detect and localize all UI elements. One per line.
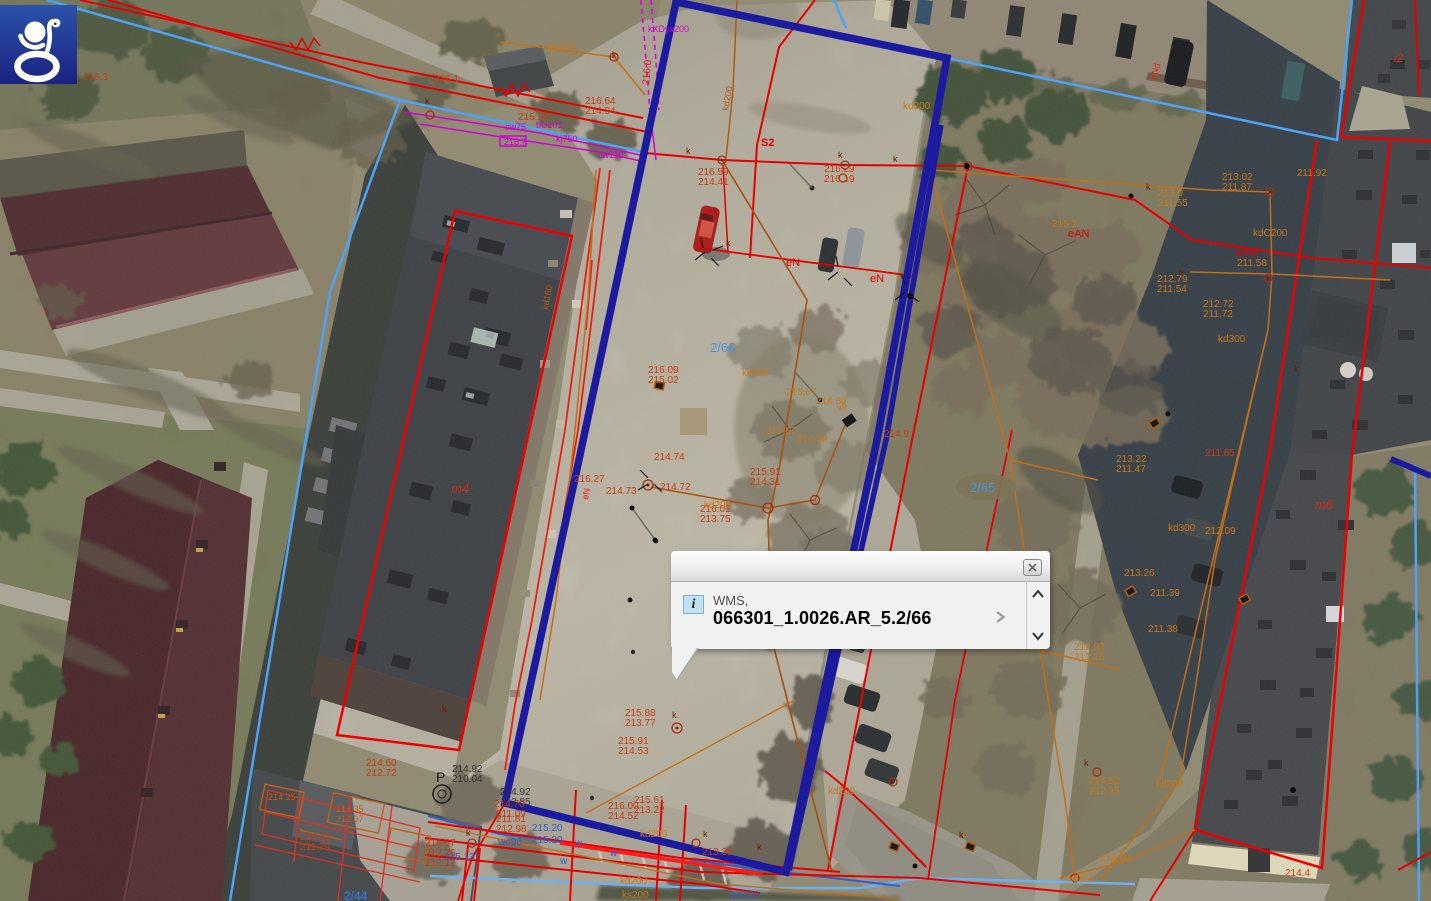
svg-text:211.87: 211.87	[1222, 182, 1252, 193]
svg-text:P: P	[436, 769, 445, 785]
svg-text:m6: m6	[1315, 497, 1334, 512]
svg-text:210.04: 210.04	[452, 774, 483, 785]
svg-text:216.1: 216.1	[434, 74, 459, 85]
svg-text:214.53: 214.53	[618, 746, 649, 757]
svg-text:eAN: eAN	[1236, 247, 1257, 259]
svg-text:213.75: 213.75	[700, 514, 731, 525]
svg-text:k: k	[703, 829, 708, 839]
svg-text:216.3: 216.3	[83, 72, 108, 83]
svg-text:212.15: 212.15	[1074, 652, 1105, 663]
svg-text:214.94: 214.94	[585, 106, 616, 117]
svg-text:kj750: kj750	[556, 134, 578, 144]
svg-text:211.79: 211.79	[300, 842, 330, 853]
svg-text:216.0: 216.0	[641, 59, 654, 85]
svg-text:216.27: 216.27	[574, 474, 605, 485]
svg-text:k: k	[612, 50, 617, 60]
svg-text:bU101: bU101	[536, 120, 563, 130]
svg-text:k: k	[686, 146, 691, 156]
svg-text:211.38: 211.38	[1148, 624, 1178, 635]
svg-text:213.35: 213.35	[702, 847, 733, 858]
svg-text:212.98: 212.98	[496, 824, 527, 835]
svg-text:kXDyx200: kXDyx200	[648, 24, 689, 34]
svg-text:kd300: kd300	[1218, 334, 1246, 345]
svg-text:211.72: 211.72	[1203, 309, 1233, 320]
svg-text:214.59: 214.59	[797, 434, 828, 445]
svg-text:211.39: 211.39	[1150, 588, 1180, 599]
svg-text:k: k	[1084, 758, 1089, 768]
svg-text:216.7: 216.7	[504, 137, 527, 147]
svg-text:211.85: 211.85	[1205, 448, 1235, 459]
svg-text:w: w	[609, 848, 618, 859]
svg-text:k: k	[466, 828, 471, 838]
svg-text:2/44: 2/44	[344, 889, 368, 901]
svg-text:214.80: 214.80	[1100, 853, 1131, 864]
svg-text:213.77: 213.77	[625, 718, 656, 729]
svg-text:215.13: 215.13	[444, 852, 475, 863]
svg-text:ks200: ks200	[622, 890, 649, 901]
svg-text:kd300: kd300	[548, 42, 576, 53]
svg-text:k: k	[726, 238, 731, 248]
svg-text:214.41: 214.41	[698, 177, 729, 188]
svg-text:kd200: kd200	[704, 500, 732, 511]
svg-text:212.35: 212.35	[1089, 786, 1120, 797]
svg-text:214.4: 214.4	[1285, 868, 1310, 879]
svg-text:kd200: kd200	[640, 829, 668, 840]
svg-text:kdC200: kdC200	[1253, 228, 1288, 239]
svg-text:k: k	[425, 96, 430, 106]
svg-text:w: w	[559, 856, 568, 867]
svg-text:kd300: kd300	[1068, 874, 1096, 885]
svg-text:kd200: kd200	[620, 876, 648, 887]
svg-text:214.72: 214.72	[660, 482, 691, 493]
svg-text:213.26: 213.26	[1124, 568, 1155, 579]
svg-text:cw110: cw110	[598, 150, 623, 160]
svg-text:214.80: 214.80	[816, 396, 847, 407]
svg-text:kd200: kd200	[903, 101, 931, 112]
svg-text:214.9: 214.9	[884, 429, 909, 440]
svg-text:wo90: wo90	[497, 837, 522, 848]
svg-text:i2: i2	[1394, 51, 1404, 65]
svg-text:eN: eN	[786, 257, 800, 269]
svg-text:211.54: 211.54	[1157, 284, 1187, 295]
svg-text:212.07: 212.07	[336, 814, 364, 824]
svg-text:214.73: 214.73	[606, 486, 637, 497]
svg-text:k: k	[823, 262, 828, 272]
svg-text:cw75: cw75	[505, 122, 526, 132]
svg-text:k: k	[838, 150, 843, 160]
svg-text:eN: eN	[580, 487, 592, 500]
svg-text:kd300: kd300	[1168, 523, 1196, 534]
svg-text:S2: S2	[761, 137, 774, 149]
svg-text:211.47: 211.47	[1116, 464, 1146, 475]
svg-text:kd200: kd200	[1156, 779, 1184, 790]
svg-text:214.31: 214.31	[750, 477, 781, 488]
svg-text:213.22: 213.22	[634, 805, 665, 816]
svg-text:212.72: 212.72	[366, 768, 397, 779]
svg-text:2/65: 2/65	[970, 480, 995, 495]
svg-text:k: k	[959, 830, 964, 840]
svg-text:k: k	[757, 842, 762, 852]
svg-text:kd200: kd200	[742, 368, 770, 379]
svg-text:k: k	[672, 710, 677, 720]
svg-text:215.67: 215.67	[766, 426, 797, 437]
svg-text:k: k	[442, 704, 447, 714]
svg-text:k: k	[1294, 364, 1299, 374]
svg-text:k: k	[1146, 182, 1151, 192]
svg-text:eN: eN	[870, 273, 884, 285]
svg-text:216.19: 216.19	[824, 174, 855, 185]
svg-text:m4: m4	[451, 481, 469, 496]
svg-text:k: k	[893, 154, 898, 164]
svg-text:w: w	[574, 838, 583, 849]
svg-text:211.92: 211.92	[1297, 168, 1327, 179]
svg-text:2/66: 2/66	[710, 340, 735, 355]
svg-text:212.09: 212.09	[1205, 526, 1236, 537]
svg-text:215.02: 215.02	[648, 375, 679, 386]
svg-text:eAN: eAN	[1068, 228, 1089, 240]
svg-text:214.74: 214.74	[654, 452, 685, 463]
svg-text:wo100: wo100	[729, 890, 760, 901]
svg-text:215.20: 215.20	[532, 835, 563, 846]
svg-text:215.20: 215.20	[532, 823, 563, 834]
svg-text:k: k	[1179, 268, 1184, 278]
svg-text:211.58: 211.58	[1237, 258, 1267, 269]
svg-text:211.55: 211.55	[1158, 198, 1188, 209]
svg-text:215.67: 215.67	[786, 387, 817, 398]
svg-text:kd200: kd200	[828, 786, 856, 797]
